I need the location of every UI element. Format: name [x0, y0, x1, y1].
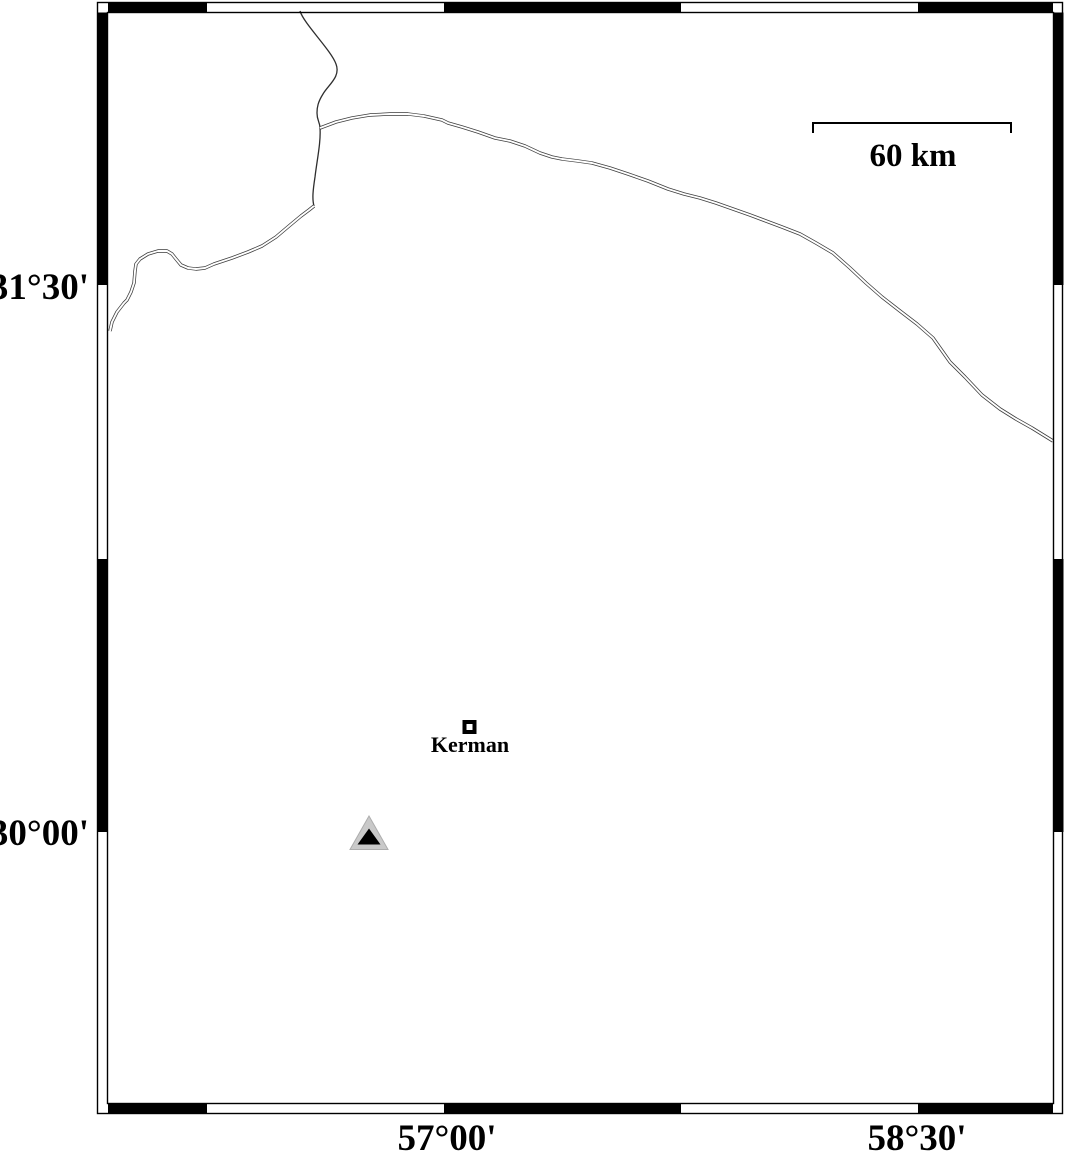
lon-label-58-30: 58°30'	[867, 1118, 966, 1154]
frame-bottom-ticks	[108, 1104, 1053, 1114]
road-left-core	[110, 206, 314, 331]
line-features	[110, 11, 1053, 441]
city-label: Kerman	[431, 732, 509, 757]
city-square-icon	[465, 722, 475, 732]
frame-top-ticks	[108, 3, 1053, 13]
frame-left-ticks	[98, 13, 108, 833]
frame-inner-line	[108, 13, 1054, 1104]
river-line	[300, 11, 337, 206]
lat-label-30-00: 30°00'	[0, 813, 89, 854]
lon-label-57-00: 57°00'	[397, 1118, 496, 1154]
scale-bar-label: 60 km	[869, 138, 956, 174]
city-marker-group: Kerman	[431, 722, 509, 757]
map-canvas: 60 km Kerman 31°30' 30°00' 57°00' 58°30'	[0, 0, 1066, 1154]
axis-annotations: 31°30' 30°00' 57°00' 58°30'	[0, 267, 967, 1154]
scale-bar-bracket	[813, 123, 1011, 133]
scale-bar: 60 km	[813, 123, 1011, 174]
lat-label-31-30: 31°30'	[0, 267, 89, 308]
map-page: 60 km Kerman 31°30' 30°00' 57°00' 58°30'	[0, 0, 1066, 1154]
road-left-outline	[110, 206, 314, 331]
station-marker-group	[350, 816, 388, 850]
road-left	[110, 206, 314, 331]
